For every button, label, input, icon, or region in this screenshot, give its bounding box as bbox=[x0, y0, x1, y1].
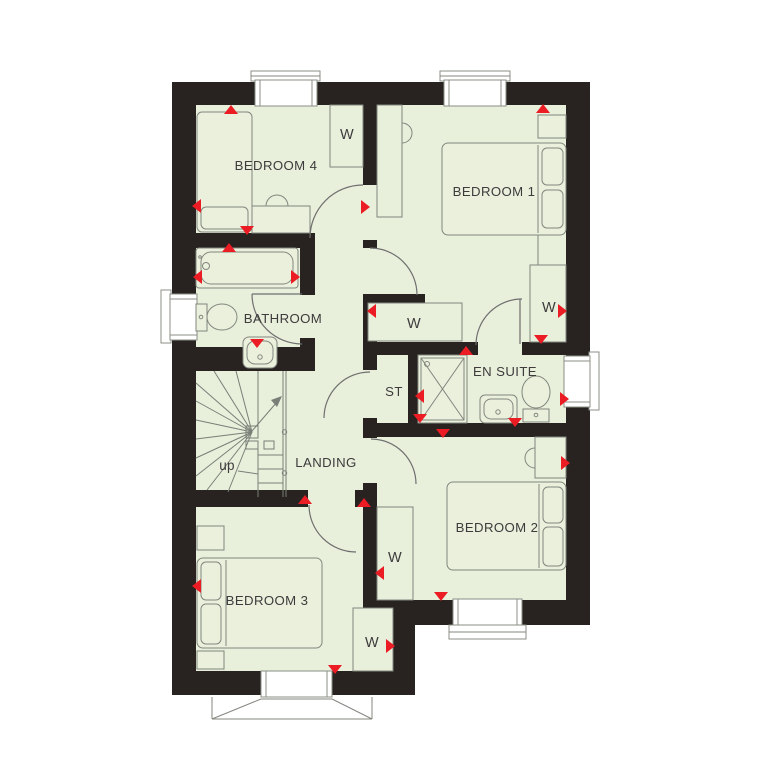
bedside-table2-bedroom3 bbox=[197, 651, 224, 669]
window-bedroom1 bbox=[440, 71, 510, 106]
toilet-ensuite bbox=[522, 376, 550, 422]
label-landing: LANDING bbox=[295, 455, 356, 470]
pillow1-bedroom2 bbox=[543, 487, 563, 523]
label-wardrobe-bedroom2: W bbox=[388, 550, 402, 566]
wall-wardrobe-top bbox=[363, 294, 425, 303]
wall-central-cap1 bbox=[363, 240, 377, 248]
label-store: ST bbox=[385, 384, 403, 399]
wall-bedroom4-bathroom bbox=[196, 233, 315, 248]
cabinet-bedroom1 bbox=[538, 115, 566, 138]
pillow-bedroom4 bbox=[201, 207, 248, 229]
label-wardrobe-bedroom4: W bbox=[340, 127, 354, 143]
wall-central-cap2 bbox=[363, 418, 377, 438]
pillow1-bedroom3 bbox=[201, 562, 221, 600]
bedside-table1-bedroom3 bbox=[197, 526, 224, 550]
bath bbox=[196, 248, 298, 288]
label-bedroom1: BEDROOM 1 bbox=[453, 184, 536, 199]
wall-ensuite-top-right bbox=[522, 342, 566, 355]
label-bedroom3: BEDROOM 3 bbox=[226, 593, 309, 608]
label-wardrobe-bedroom3: W bbox=[365, 635, 379, 651]
toilet-bathroom bbox=[196, 304, 237, 331]
wall-exterior-left bbox=[172, 82, 196, 695]
pillow2-bedroom2 bbox=[543, 527, 563, 566]
pillow2-bedroom1 bbox=[542, 190, 563, 228]
shower-ensuite bbox=[418, 355, 467, 423]
wall-bedroom3-top-left bbox=[196, 490, 308, 507]
dressing-table-bedroom4 bbox=[252, 206, 310, 233]
window-bedroom2 bbox=[449, 599, 526, 639]
window-ensuite bbox=[564, 352, 599, 410]
wall-ensuite-bedroom2 bbox=[377, 423, 566, 437]
wall-exterior-top bbox=[172, 82, 590, 105]
label-ensuite: EN SUITE bbox=[473, 364, 537, 379]
label-bathroom: BATHROOM bbox=[244, 311, 322, 326]
label-stairs-up: up bbox=[219, 458, 234, 473]
floorplan-canvas: BEDROOM 4 BEDROOM 1 BATHROOM EN SUITE ST… bbox=[0, 0, 760, 760]
wall-store-shower bbox=[408, 355, 418, 423]
pillow1-bedroom1 bbox=[542, 148, 563, 185]
label-wardrobe-bedroom1: W bbox=[542, 300, 556, 316]
label-bedroom2: BEDROOM 2 bbox=[456, 520, 539, 535]
recess-bedroom1 bbox=[377, 105, 402, 217]
wall-exterior-right bbox=[566, 82, 590, 625]
pillow2-bedroom3 bbox=[201, 604, 221, 644]
window-bedroom4 bbox=[251, 71, 320, 106]
floorplan-page: BEDROOM 4 BEDROOM 1 BATHROOM EN SUITE ST… bbox=[0, 0, 760, 760]
window-bathroom bbox=[161, 290, 197, 343]
label-wardrobe-landing: W bbox=[407, 316, 421, 332]
label-bedroom4: BEDROOM 4 bbox=[235, 158, 318, 173]
wall-central-upper bbox=[363, 105, 377, 185]
wall-bathroom-right-upper bbox=[300, 246, 315, 295]
